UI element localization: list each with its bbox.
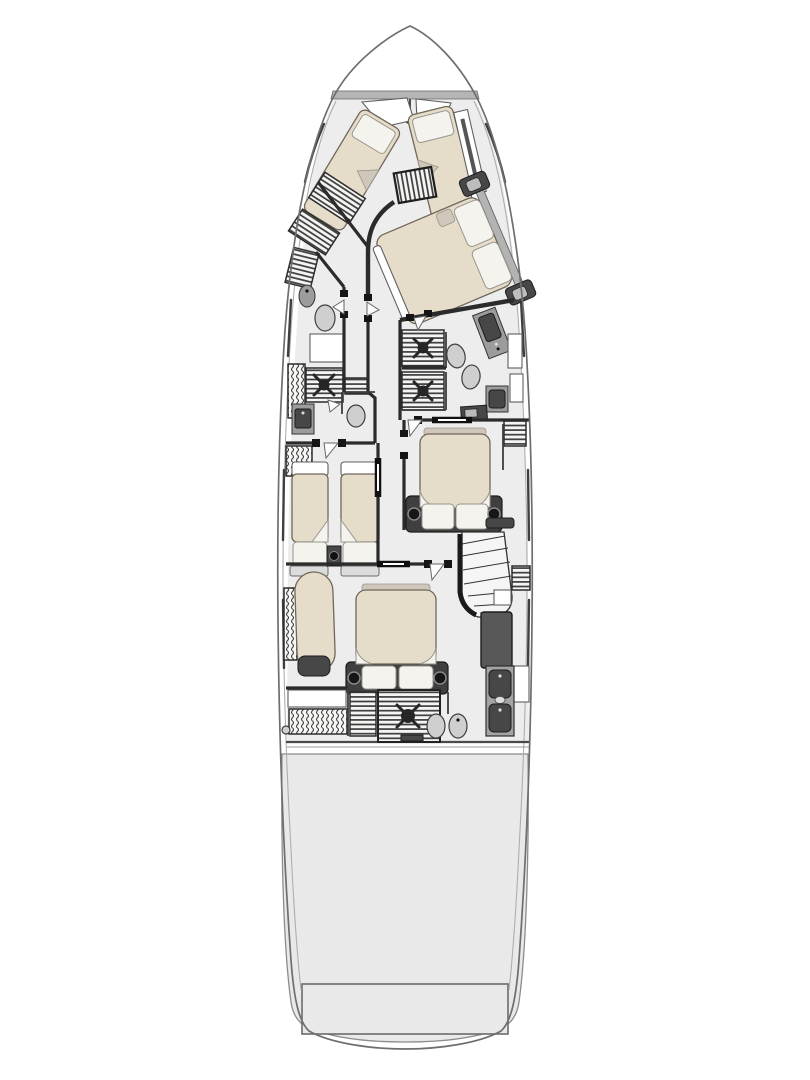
transom-garage bbox=[302, 984, 508, 1034]
master-ottoman bbox=[298, 656, 330, 676]
port-bathroom-sink bbox=[299, 285, 315, 307]
guest-frame-bolt-left bbox=[408, 508, 420, 520]
master-bed-duvet bbox=[356, 590, 436, 664]
starboard-hull-cabinet-1 bbox=[508, 334, 522, 368]
master-vanity-sink-2 bbox=[489, 704, 511, 732]
master-bath-knob bbox=[282, 726, 290, 734]
master-frame-bolt-right bbox=[434, 672, 446, 684]
port-bathroom-toilet bbox=[315, 305, 335, 331]
starboard-hull-cabinet-2 bbox=[510, 374, 523, 402]
staircase-landing-box bbox=[494, 590, 511, 605]
guest-vanity-sink bbox=[489, 390, 505, 408]
master-vanity-faucet-1 bbox=[498, 674, 501, 677]
port-bathroom-sink-2-faucet bbox=[302, 412, 305, 415]
twin-bed-2-base bbox=[341, 566, 379, 576]
master-vanity-soap-dish bbox=[495, 697, 505, 704]
staircase-side-locker bbox=[512, 566, 530, 590]
master-bath-hanging-locker bbox=[289, 709, 347, 734]
guest-bed-duvet bbox=[420, 434, 490, 508]
master-shower-mat bbox=[401, 735, 423, 741]
day-head-toilet bbox=[347, 405, 365, 427]
master-vanity-faucet-2 bbox=[498, 708, 501, 711]
window-port-guest bbox=[283, 470, 284, 540]
master-bath-cabinet-row bbox=[288, 690, 346, 707]
master-frame-bolt-left bbox=[348, 672, 360, 684]
entry-stairs bbox=[394, 167, 437, 203]
master-pillow-2 bbox=[399, 666, 433, 689]
master-bidet bbox=[449, 714, 467, 738]
master-wardrobe bbox=[481, 612, 512, 668]
master-pillow-1 bbox=[362, 666, 396, 689]
port-bathroom-vanity bbox=[310, 334, 343, 362]
floorplan-canvas bbox=[0, 0, 810, 1080]
master-vanity-sink-1 bbox=[489, 670, 511, 698]
twin-nightstand-lamp bbox=[330, 552, 339, 561]
guest-pillow-2 bbox=[456, 504, 488, 529]
yacht-lower-deck-floorplan bbox=[0, 0, 810, 1080]
guest-bathroom-locker bbox=[504, 420, 526, 446]
port-bathroom-sink-faucet bbox=[305, 289, 308, 292]
master-toilet bbox=[427, 714, 445, 738]
master-bidet-faucet bbox=[456, 718, 459, 721]
guest-cabin bbox=[406, 428, 502, 532]
master-bath-shelf-unit bbox=[350, 692, 376, 736]
guest-pillow-1 bbox=[422, 504, 454, 529]
window-starboard-master bbox=[528, 600, 529, 668]
staircase-lintel bbox=[486, 518, 514, 528]
window-starboard-guest bbox=[528, 470, 529, 540]
entry-stairs-treads bbox=[394, 167, 437, 203]
